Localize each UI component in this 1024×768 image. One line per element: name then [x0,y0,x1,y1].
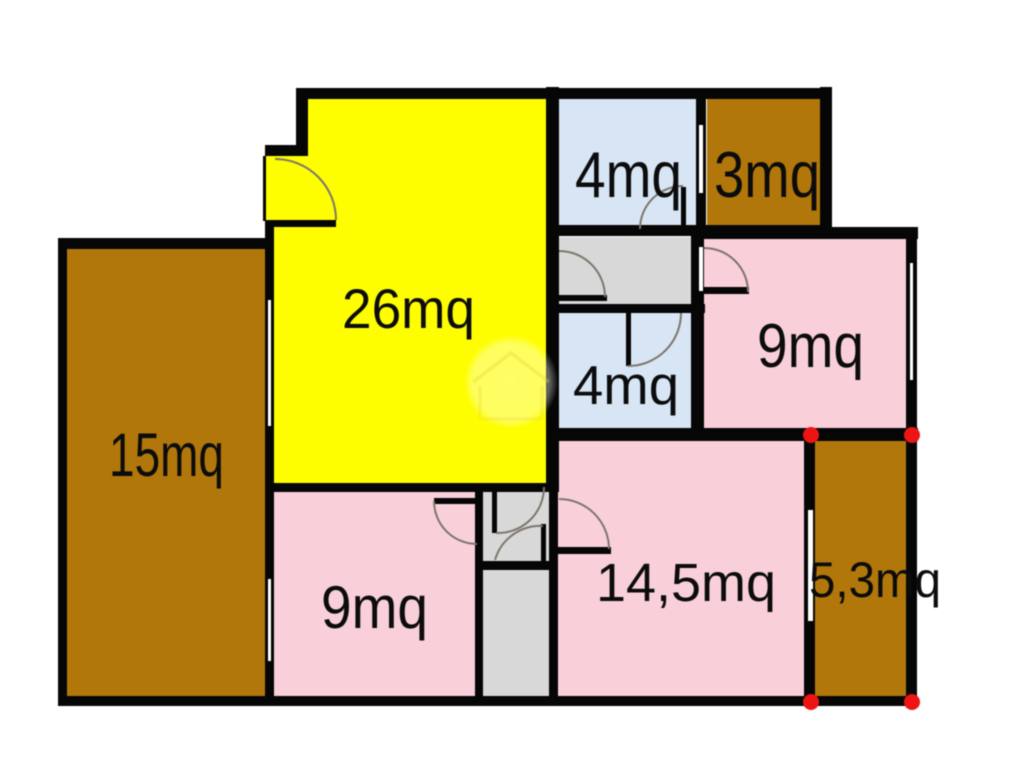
svg-text:9mq: 9mq [321,574,428,641]
svg-text:5,3mq: 5,3mq [809,552,941,608]
svg-text:9mq: 9mq [757,312,864,381]
svg-text:14,5mq: 14,5mq [596,553,776,613]
svg-text:4mq: 4mq [575,138,682,211]
svg-text:3mq: 3mq [714,138,820,211]
svg-text:26mq: 26mq [342,277,475,340]
svg-text:15mq: 15mq [109,421,224,489]
svg-text:4mq: 4mq [573,354,679,416]
